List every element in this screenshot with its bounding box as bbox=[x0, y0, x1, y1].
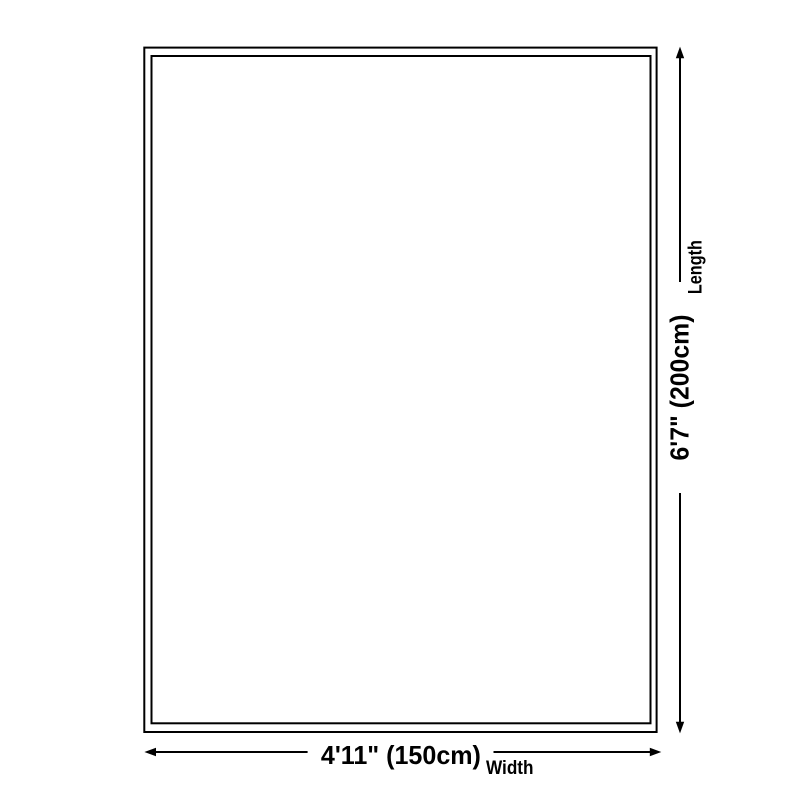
svg-text:6'7" (200cm): 6'7" (200cm) bbox=[665, 315, 695, 461]
svg-text:4'11" (150cm): 4'11" (150cm) bbox=[321, 740, 481, 770]
svg-text:Width: Width bbox=[486, 758, 534, 779]
svg-text:Length: Length bbox=[686, 240, 707, 294]
